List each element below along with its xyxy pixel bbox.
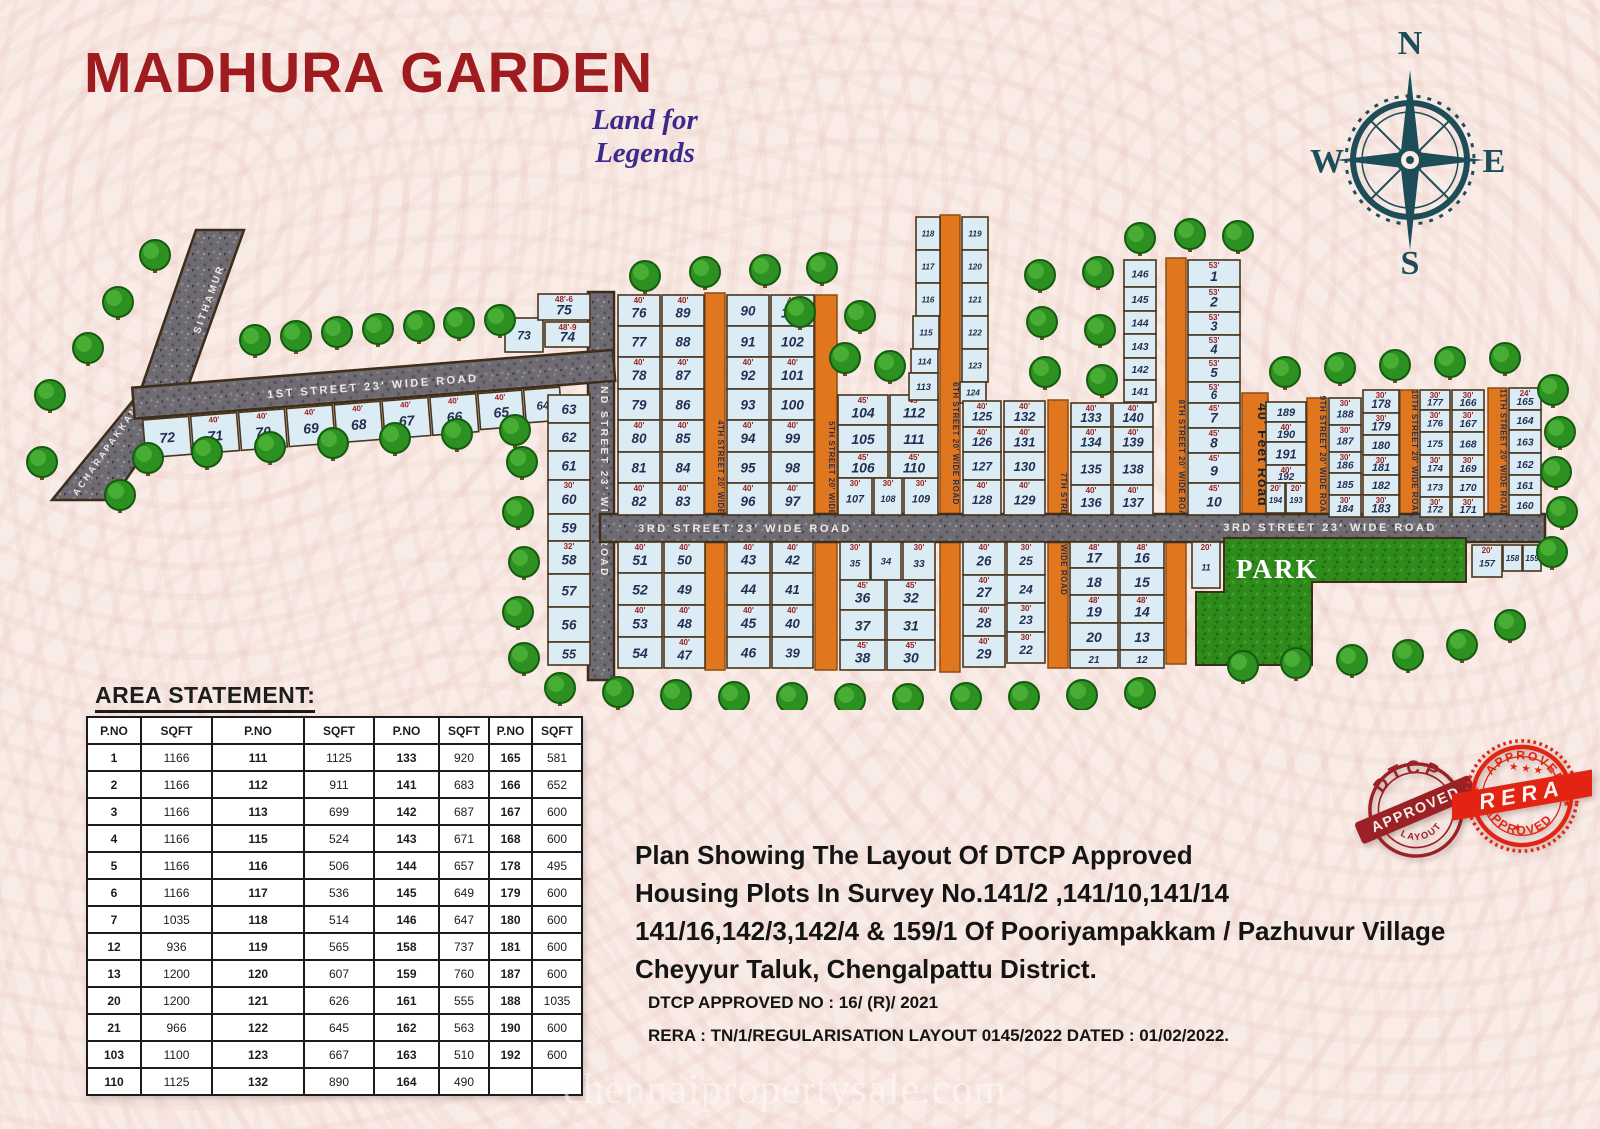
plot-59: 59	[548, 514, 590, 541]
tree-icon	[1435, 347, 1465, 380]
plot-23: 2330'	[1007, 603, 1045, 632]
sqft-cell: 1200	[141, 960, 212, 987]
plot-27: 2740'	[963, 575, 1005, 605]
sqft-cell: 607	[304, 960, 374, 987]
street-label: 11TH STREET 20' WIDE ROAD	[1499, 389, 1508, 516]
tree-icon	[1490, 343, 1520, 376]
sqft-cell: 1125	[304, 744, 374, 771]
plot-dim: 40'	[787, 606, 798, 615]
plot-number: 161	[1516, 481, 1533, 492]
plot-124: 124	[960, 382, 986, 403]
plot-no-cell: 141	[374, 771, 439, 798]
plot-number: 72	[159, 429, 176, 446]
tree-icon	[507, 447, 537, 480]
plot-100: 100	[771, 389, 814, 420]
plot-number: 93	[741, 398, 756, 413]
plot-number: 49	[676, 582, 692, 597]
plot-dim: 40'	[494, 392, 506, 402]
plot-number: 180	[1372, 440, 1391, 452]
plot-number: 30	[903, 649, 919, 665]
plan-description-line: Housing Plots In Survey No.141/2 ,141/10…	[635, 874, 1475, 912]
plot-number: 164	[1516, 416, 1533, 427]
road-label: 3RD STREET 23' WIDE ROAD	[638, 523, 852, 535]
sqft-cell: 647	[439, 906, 489, 933]
tree-icon	[875, 351, 905, 384]
sqft-cell: 565	[304, 933, 374, 960]
plot-dim: 40'	[635, 543, 646, 552]
plot-number: 90	[741, 304, 756, 319]
plot-number: 185	[1336, 480, 1353, 491]
sqft-cell: 600	[532, 960, 582, 987]
plot-82: 8240'	[618, 483, 660, 515]
plot-176: 17630'	[1420, 410, 1450, 432]
plot-number: 143	[1131, 342, 1148, 353]
plot-dim: 40'	[979, 543, 990, 552]
plot-number: 146	[1131, 269, 1148, 280]
plot-158: 158	[1503, 545, 1522, 571]
sqft-cell: 581	[532, 744, 582, 771]
plot-134: 13440'	[1071, 427, 1111, 452]
plot-dim: 40'	[1086, 404, 1097, 413]
area-statement-title: AREA STATEMENT:	[95, 682, 315, 713]
plot-7: 745'	[1188, 403, 1240, 428]
sqft-cell: 600	[532, 825, 582, 852]
tree-icon	[1025, 260, 1055, 293]
plot-number: 29	[976, 647, 992, 662]
plot-number: 120	[968, 262, 982, 272]
plot-number: 114	[918, 356, 932, 366]
compass-s: S	[1401, 245, 1420, 282]
tree-icon	[1030, 357, 1060, 390]
plot-number: 34	[881, 557, 892, 568]
plot-dim: 40'	[979, 637, 990, 646]
plot-20: 20	[1070, 623, 1118, 650]
park-label: PARK	[1236, 554, 1319, 584]
plot-number: 101	[781, 368, 804, 383]
plot-dim: 40'	[743, 606, 754, 615]
street-6th: 6TH STREET 20' WIDE ROAD	[940, 215, 960, 672]
plot-no-cell: 3	[87, 798, 141, 825]
plot-no-cell: 119	[212, 933, 304, 960]
plot-number: 43	[740, 553, 757, 568]
plot-no-cell: 1	[87, 744, 141, 771]
plot-number: 83	[676, 494, 691, 509]
street-label: 6TH STREET 20' WIDE ROAD	[951, 382, 960, 505]
sqft-cell: 737	[439, 933, 489, 960]
plot-8: 845'	[1188, 428, 1240, 453]
plot-no-cell: 167	[489, 798, 532, 825]
street-label: 9TH STREET 20' WIDE ROAD	[1318, 396, 1327, 519]
table-row: 111661111125133920165581	[87, 744, 582, 771]
plot-dim: 40'	[743, 421, 754, 430]
tree-icon	[444, 308, 474, 341]
plot-number: 170	[1459, 483, 1476, 494]
plot-dim: 45'	[857, 581, 868, 590]
plot-number: 40	[784, 616, 800, 631]
plot-138: 138	[1113, 452, 1153, 485]
sqft-cell: 920	[439, 744, 489, 771]
plot-number: 77	[632, 335, 647, 350]
tree-icon	[442, 419, 472, 452]
plot-dim: 40'	[1019, 402, 1030, 411]
sqft-cell: 687	[439, 798, 489, 825]
road-label: 2ND STREET 23' WIDE ROAD	[598, 378, 609, 578]
plot-31: 31	[887, 610, 935, 640]
plot-145: 145	[1124, 287, 1156, 311]
plot-5: 553'	[1188, 358, 1240, 382]
plot-number: 54	[632, 645, 648, 661]
plot-25: 2530'	[1007, 542, 1045, 575]
plot-49: 49	[664, 573, 705, 605]
plot-number: 168	[1459, 439, 1476, 450]
table-row: 61166117536145649179600	[87, 879, 582, 906]
plot-number: 107	[846, 494, 865, 506]
plot-number: 111	[903, 431, 924, 447]
plot-dim: 40'	[678, 484, 689, 493]
table-row: 1031100123667163510192600	[87, 1041, 582, 1068]
plot-dim: 53'	[1209, 383, 1220, 392]
plot-number: 160	[1516, 501, 1533, 512]
plan-description-line: 141/16,142/3,142/4 & 159/1 Of Pooriyampa…	[635, 912, 1475, 950]
tree-icon	[1067, 680, 1097, 710]
sqft-cell: 600	[532, 906, 582, 933]
plot-number: 132	[1014, 409, 1037, 424]
tree-icon	[1085, 315, 1115, 348]
plot-192: 19240'	[1266, 465, 1306, 483]
tree-icon	[603, 677, 633, 710]
plot-number: 26	[976, 554, 992, 569]
tree-icon	[1495, 610, 1525, 643]
plot-no-cell: 161	[374, 987, 439, 1014]
plot-101: 10140'	[771, 357, 814, 389]
plot-number: 118	[922, 230, 935, 239]
plot-no-cell: 115	[212, 825, 304, 852]
tree-icon	[807, 253, 837, 286]
plot-102: 102	[771, 326, 814, 357]
plot-56: 56	[548, 607, 590, 642]
table-row: 71035118514146647180600	[87, 906, 582, 933]
plot-dim: 40'	[1086, 486, 1097, 495]
plot-dim: 48'	[1137, 596, 1148, 605]
plot-dim: 30'	[1340, 496, 1351, 505]
plot-dim: 40'	[679, 638, 690, 647]
tree-icon	[322, 317, 352, 350]
plot-no-cell: 5	[87, 852, 141, 879]
plot-dim: 40'	[977, 428, 988, 437]
plot-number: 186	[1336, 460, 1353, 471]
plot-no-cell: 163	[374, 1041, 439, 1068]
plot-dim: 30'	[916, 479, 927, 488]
plot-number: 58	[562, 553, 577, 568]
plot-4: 453'	[1188, 335, 1240, 358]
plot-6: 653'	[1188, 382, 1240, 403]
plot-dim: 53'	[1209, 288, 1220, 297]
plot-dim: 40'	[787, 358, 798, 367]
plot-number: 55	[562, 647, 577, 661]
table-row: 51166116506144657178495	[87, 852, 582, 879]
plot-number: 68	[350, 416, 367, 433]
plot-119: 119	[962, 217, 988, 250]
plot-number: 62	[562, 430, 577, 445]
plot-17: 1748'	[1070, 542, 1118, 568]
plot-dim: 40'	[743, 543, 754, 552]
plot-131: 13140'	[1004, 427, 1045, 452]
plot-19: 1948'	[1070, 595, 1118, 623]
sqft-cell: 626	[304, 987, 374, 1014]
tree-icon	[255, 432, 285, 465]
plot-number: 98	[785, 461, 801, 476]
plot-dim: 40'	[679, 606, 690, 615]
compass-e: E	[1483, 143, 1506, 180]
sqft-cell: 536	[304, 879, 374, 906]
tree-icon	[240, 325, 270, 358]
plot-128: 12840'	[963, 480, 1001, 515]
area-col-header: P.NO	[87, 717, 141, 744]
plot-132: 13240'	[1004, 401, 1045, 427]
plot-dim: 40'	[678, 358, 689, 367]
tree-icon	[777, 683, 807, 710]
plot-number: 50	[677, 552, 692, 567]
plot-81: 81	[618, 452, 660, 483]
plot-194: 19420'	[1266, 483, 1285, 513]
plot-118: 118	[916, 217, 940, 250]
plot-107: 10730'	[838, 478, 872, 515]
plot-116: 116	[916, 283, 940, 316]
plot-no-cell: 164	[374, 1068, 439, 1095]
plot-172: 17230'	[1420, 497, 1450, 517]
plot-146: 146	[1124, 260, 1156, 287]
plot-48: 4840'	[664, 605, 705, 637]
sqft-cell: 524	[304, 825, 374, 852]
tree-icon	[1009, 682, 1039, 710]
plot-number: 123	[968, 361, 982, 371]
plot-144: 144	[1124, 311, 1156, 334]
sqft-cell: 699	[304, 798, 374, 825]
plot-number: 73	[517, 329, 531, 343]
plot-number: 19	[1086, 603, 1102, 619]
plot-dim: 45'	[1209, 404, 1220, 413]
plot-number: 59	[562, 521, 577, 536]
plot-dim: 45'	[858, 453, 869, 462]
plot-75: 7548'-6	[538, 294, 590, 320]
plot-number: 81	[632, 461, 647, 476]
plot-104: 10445'	[838, 395, 888, 425]
plot-dim: 40'	[1128, 428, 1139, 437]
plot-dim: 40'	[787, 484, 798, 493]
tree-icon	[845, 301, 875, 334]
tree-icon	[1270, 357, 1300, 390]
plot-178: 17830'	[1363, 390, 1399, 413]
plot-number: 162	[1516, 460, 1533, 471]
table-row: 21966122645162563190600	[87, 1014, 582, 1041]
tree-icon	[1125, 223, 1155, 256]
sqft-cell: 760	[439, 960, 489, 987]
plot-dim: 40'	[1128, 404, 1139, 413]
street-9th: 9TH STREET 20' WIDE ROAD	[1307, 396, 1327, 519]
plot-84: 84	[662, 452, 704, 483]
layout-poster: 4TH STREET 20' WIDE ROAD5TH STREET 20' W…	[0, 0, 1600, 1129]
plot-number: 115	[919, 328, 933, 338]
plot-13: 13	[1120, 623, 1164, 650]
plot-number: 125	[972, 410, 993, 424]
plot-no-cell: 180	[489, 906, 532, 933]
tree-icon	[27, 447, 57, 480]
plot-number: 165	[1516, 397, 1533, 408]
compass-n: N	[1398, 25, 1423, 62]
plot-number: 100	[781, 398, 804, 413]
plot-number: 82	[632, 494, 647, 509]
plot-24: 24	[1007, 575, 1045, 603]
plot-number: 35	[850, 559, 861, 570]
sqft-cell: 600	[532, 1041, 582, 1068]
plot-no-cell: 144	[374, 852, 439, 879]
plot-dim: 30'	[564, 481, 575, 490]
sqft-cell: 667	[304, 1041, 374, 1068]
sqft-cell: 600	[532, 933, 582, 960]
plot-dim: 30'	[1376, 496, 1387, 505]
plot-94: 9440'	[727, 420, 769, 452]
plot-number: 112	[903, 404, 926, 420]
plot-dim: 30'	[850, 479, 861, 488]
plot-30: 3045'	[887, 640, 935, 670]
plot-number: 137	[1122, 495, 1144, 510]
plot-number: 80	[632, 431, 647, 446]
plot-number: 20	[1085, 629, 1102, 645]
tree-icon	[1027, 307, 1057, 340]
plot-114: 114	[911, 349, 938, 373]
sqft-cell: 600	[532, 879, 582, 906]
plot-80: 8040'	[618, 420, 660, 452]
plot-40: 4040'	[772, 605, 813, 637]
plot-number: 88	[676, 335, 691, 350]
plot-number: 188	[1336, 409, 1353, 420]
plot-number: 86	[676, 398, 691, 413]
plot-113: 113	[909, 373, 938, 400]
plot-dim: 40'	[1281, 466, 1292, 475]
plot-number: 175	[1427, 439, 1444, 450]
plot-number: 136	[1080, 495, 1102, 510]
plot-129: 12940'	[1004, 480, 1045, 515]
plot-no-cell: 133	[374, 744, 439, 771]
plot-no-cell: 145	[374, 879, 439, 906]
plot-121: 121	[962, 283, 988, 316]
plot-dim: 40'	[679, 543, 690, 552]
plot-165: 16524'	[1509, 388, 1541, 410]
sqft-cell: 1100	[141, 1041, 212, 1068]
plot-98: 98	[771, 452, 814, 483]
tree-icon	[133, 443, 163, 476]
plot-no-cell: 20	[87, 987, 141, 1014]
sqft-cell: 600	[532, 798, 582, 825]
plot-number: 18	[1086, 574, 1102, 590]
plot-91: 91	[727, 326, 769, 357]
area-col-header: SQFT	[141, 717, 212, 744]
plot-dim: 45'	[909, 453, 920, 462]
plot-number: 95	[741, 461, 756, 476]
plot-dim: 30'	[1340, 426, 1351, 435]
plot-no-cell: 2	[87, 771, 141, 798]
plot-3: 353'	[1188, 312, 1240, 335]
plot-no-cell: 190	[489, 1014, 532, 1041]
plot-77: 77	[618, 326, 660, 357]
plot-number: 87	[676, 368, 691, 383]
plot-95: 95	[727, 452, 769, 483]
plot-dim: 30'	[1430, 391, 1441, 400]
tree-icon	[503, 597, 533, 630]
plot-dim: 40'	[304, 407, 316, 417]
plot-139: 13940'	[1113, 427, 1153, 452]
plot-dim: 30'	[1340, 399, 1351, 408]
plot-dim: 48'	[1089, 596, 1100, 605]
plot-63: 63	[548, 395, 590, 423]
plot-number: 42	[784, 552, 800, 567]
plot-9: 945'	[1188, 453, 1240, 483]
plot-181: 18130'	[1363, 455, 1399, 475]
plan-description-line: Cheyyur Taluk, Chengalpattu District.	[635, 950, 1475, 988]
plot-number: 38	[855, 649, 871, 665]
tree-icon	[893, 684, 923, 710]
sqft-cell: 600	[532, 1014, 582, 1041]
plot-2: 253'	[1188, 287, 1240, 312]
sqft-cell: 1166	[141, 798, 212, 825]
plot-dim: 30'	[1463, 411, 1474, 420]
plot-43: 4340'	[727, 542, 770, 573]
plot-92: 9240'	[727, 357, 769, 389]
plot-number: 130	[1014, 459, 1037, 474]
tree-icon	[1125, 678, 1155, 710]
plot-no-cell: 21	[87, 1014, 141, 1041]
plot-45: 4540'	[727, 605, 770, 637]
plot-58: 5832'	[548, 541, 590, 574]
plot-no-cell: 123	[212, 1041, 304, 1068]
plot-number: 32	[903, 589, 919, 605]
plot-number: 124	[966, 388, 980, 398]
plot-no-cell: 188	[489, 987, 532, 1014]
plot-46: 46	[727, 637, 770, 668]
tree-icon	[380, 423, 410, 456]
plot-125: 12540'	[963, 401, 1001, 427]
tree-icon	[509, 547, 539, 580]
plot-dim: 20'	[1270, 484, 1281, 493]
plot-number: 1	[1210, 268, 1218, 284]
plot-no-cell: 179	[489, 879, 532, 906]
tree-icon	[500, 415, 530, 448]
dtcp-approval-number: DTCP APPROVED NO : 16/ (R)/ 2021	[648, 986, 1348, 1019]
plot-79: 79	[618, 389, 660, 420]
plot-53: 5340'	[618, 605, 662, 637]
plot-dim: 53'	[1209, 313, 1220, 322]
plot-dim: 40'	[400, 400, 412, 410]
sqft-cell: 1166	[141, 744, 212, 771]
plot-no-cell: 4	[87, 825, 141, 852]
plot-number: 13	[1134, 629, 1150, 645]
plot-number: 39	[785, 645, 800, 660]
plot-dim: 40'	[1019, 481, 1030, 490]
plot-14: 1448'	[1120, 595, 1164, 623]
plot-number: 37	[855, 617, 872, 633]
tree-icon	[545, 673, 575, 706]
plot-dim: 40'	[743, 484, 754, 493]
sqft-cell: 649	[439, 879, 489, 906]
plot-47: 4740'	[664, 637, 705, 668]
plot-50: 5040'	[664, 542, 705, 573]
plot-62: 62	[548, 423, 590, 451]
plot-number: 126	[972, 435, 993, 449]
plot-number: 22	[1018, 643, 1033, 657]
plot-188: 18830'	[1329, 398, 1361, 425]
sqft-cell: 510	[439, 1041, 489, 1068]
plot-no-cell: 13	[87, 960, 141, 987]
